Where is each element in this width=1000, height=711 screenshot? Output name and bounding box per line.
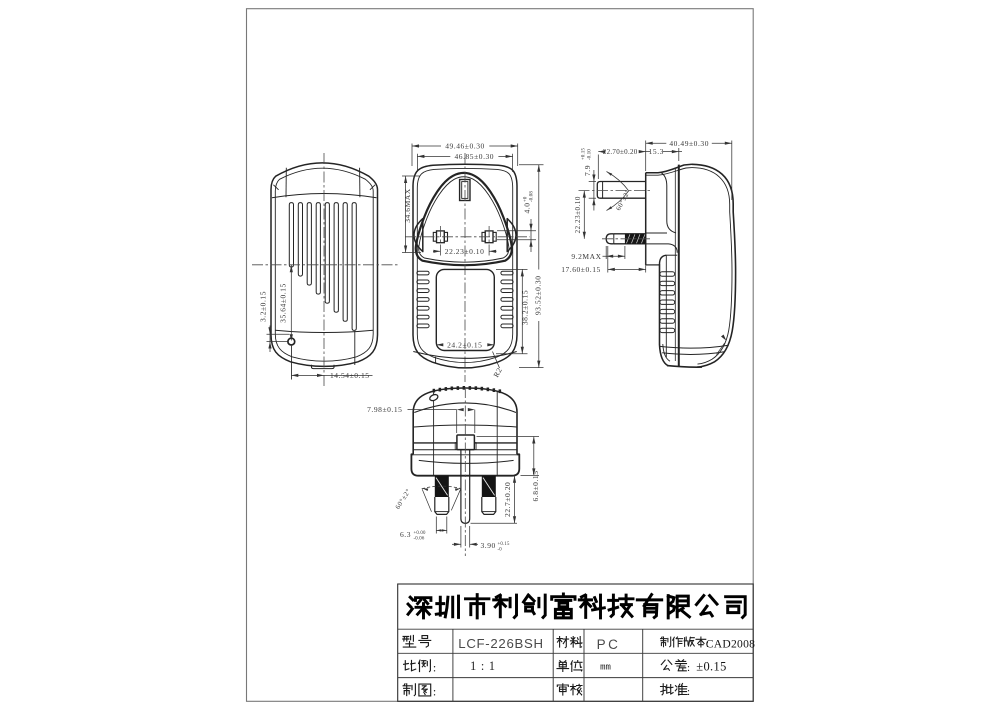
svg-text:38.2±0.15: 38.2±0.15 <box>521 290 530 325</box>
svg-text:-0.08: -0.08 <box>529 191 534 202</box>
svg-text:PC: PC <box>597 637 621 652</box>
svg-text::: : <box>687 662 690 674</box>
svg-text:22.23±0.10: 22.23±0.10 <box>574 196 582 233</box>
svg-text:22.7±0.20: 22.7±0.20 <box>503 482 512 517</box>
svg-text::: : <box>580 662 583 674</box>
svg-text::: : <box>580 686 583 698</box>
svg-text:+0.00: +0.00 <box>414 531 427 536</box>
svg-text:4.0: 4.0 <box>522 202 531 213</box>
svg-text:3.2±0.15: 3.2±0.15 <box>258 291 267 322</box>
svg-text:mm: mm <box>600 663 611 673</box>
svg-text:93.52±0.30: 93.52±0.30 <box>534 275 543 315</box>
svg-text:49.46±0.30: 49.46±0.30 <box>445 142 485 151</box>
svg-text:24.2±0.15: 24.2±0.15 <box>447 340 482 349</box>
svg-text:6.3: 6.3 <box>400 530 411 539</box>
svg-text:7.9: 7.9 <box>583 165 592 176</box>
svg-text:CAD2008: CAD2008 <box>706 637 755 650</box>
svg-text:±0.15: ±0.15 <box>696 660 726 674</box>
svg-text:-0.06: -0.06 <box>414 537 425 542</box>
svg-text::: : <box>433 660 436 674</box>
svg-text::: : <box>687 686 690 698</box>
svg-text:1 : 1: 1 : 1 <box>470 659 496 673</box>
svg-text:14.54±0.15: 14.54±0.15 <box>330 371 370 380</box>
svg-text::: : <box>433 684 436 698</box>
svg-text:17.60±0.15: 17.60±0.15 <box>561 265 601 274</box>
svg-text:3.90: 3.90 <box>481 541 496 550</box>
svg-text:6.8±0.15: 6.8±0.15 <box>531 470 540 501</box>
svg-text:40.49±0.30: 40.49±0.30 <box>669 139 709 148</box>
svg-text:9.2MAX: 9.2MAX <box>571 252 601 261</box>
svg-text:+0: +0 <box>524 196 529 202</box>
svg-text:15.3: 15.3 <box>649 147 664 156</box>
svg-text:+0.15: +0.15 <box>582 147 587 160</box>
svg-text:-0.10: -0.10 <box>588 149 593 160</box>
svg-text::: : <box>580 639 583 651</box>
svg-text:7.98±0.15: 7.98±0.15 <box>367 405 402 414</box>
svg-text:34.6MAX: 34.6MAX <box>403 188 412 223</box>
svg-text:LCF-226BSH: LCF-226BSH <box>458 636 543 651</box>
svg-text:35.64±0.15: 35.64±0.15 <box>279 283 288 323</box>
svg-text:-0: -0 <box>498 548 503 553</box>
svg-text:+0.15: +0.15 <box>498 542 511 547</box>
svg-text:46.85±0.30: 46.85±0.30 <box>454 152 494 161</box>
svg-text:22.23±0.10: 22.23±0.10 <box>445 247 485 256</box>
svg-text:22.70±0.20: 22.70±0.20 <box>603 148 638 156</box>
